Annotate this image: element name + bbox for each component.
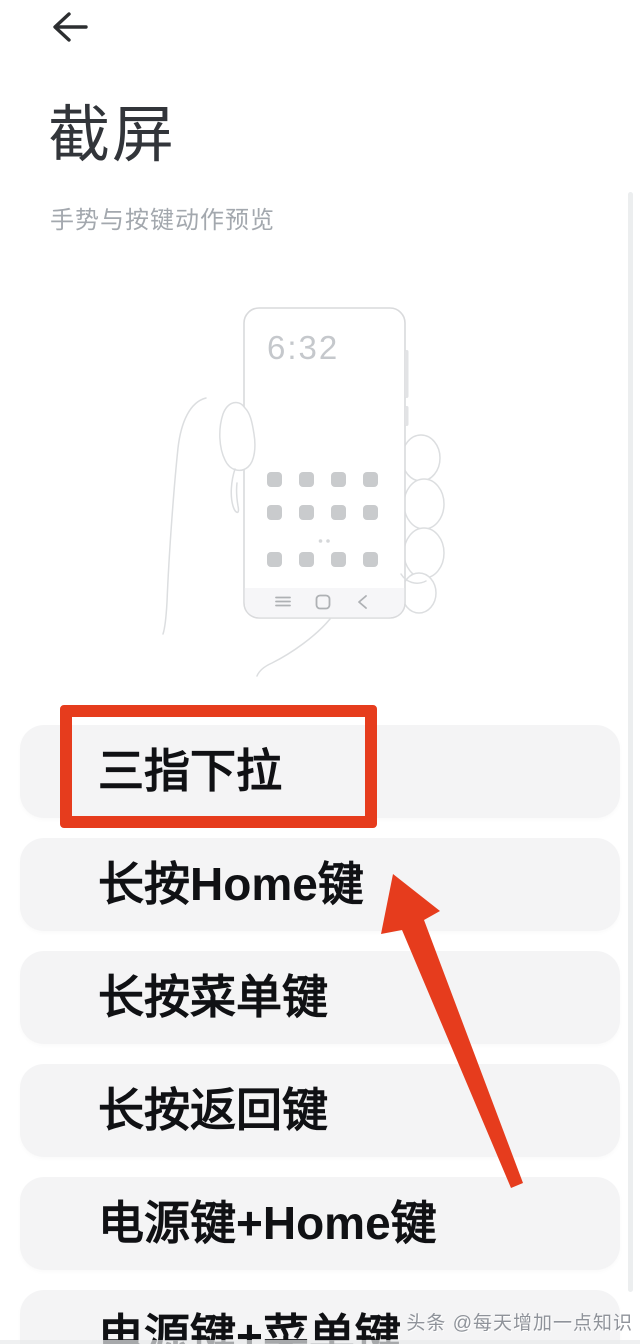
phone-clock: 6:32 bbox=[267, 329, 339, 366]
fingers-outline bbox=[402, 435, 444, 613]
red-arrow-icon bbox=[381, 874, 523, 1188]
back-arrow-icon bbox=[55, 14, 86, 40]
hand-holding-phone-illustration: 6:32 bbox=[140, 290, 470, 690]
back-button[interactable] bbox=[44, 8, 96, 52]
page-title: 截屏 bbox=[48, 84, 176, 174]
screenshot-settings-screen: 截屏 手势与按键动作预览 6:32 bbox=[0, 0, 640, 1344]
arrow-annotation bbox=[365, 860, 535, 1200]
watermark: 头条 @每天增加一点知识 bbox=[406, 1308, 633, 1335]
highlight-box-annotation bbox=[60, 705, 377, 828]
scrollbar[interactable] bbox=[628, 192, 633, 1292]
phone-side-buttons bbox=[405, 350, 409, 426]
page-subtitle: 手势与按键动作预览 bbox=[50, 200, 275, 235]
bottom-edge-line bbox=[0, 1340, 640, 1344]
phone-navbar bbox=[245, 588, 404, 617]
